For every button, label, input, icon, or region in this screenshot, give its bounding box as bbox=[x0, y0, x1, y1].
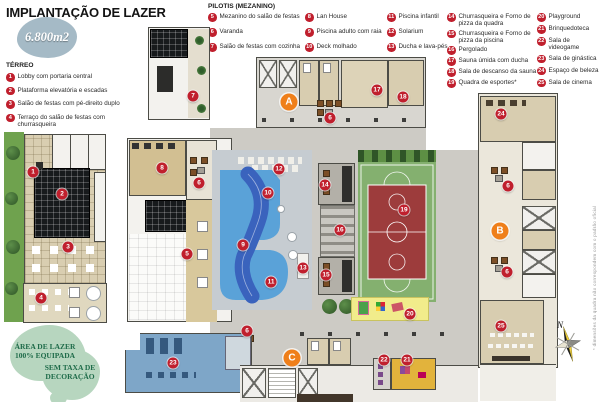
legend-number-badge: 5 bbox=[208, 13, 217, 22]
legend-number-badge: 22 bbox=[537, 37, 546, 46]
tower-badge-A: A bbox=[281, 94, 298, 111]
legend-pilotis-column-3: 11Piscina infantil12Solarium13Ducha e la… bbox=[387, 13, 449, 58]
plan-marker-7: 7 bbox=[188, 91, 199, 102]
legend-terreo: TÉRREO 1Lobby com portaria central2Plata… bbox=[6, 62, 140, 133]
plan-marker-2: 2 bbox=[57, 189, 68, 200]
plan-marker-10: 10 bbox=[263, 188, 274, 199]
area-badge-label: 6.800m2 bbox=[25, 30, 69, 45]
plan-marker-20: 20 bbox=[405, 309, 416, 320]
play-mat bbox=[358, 301, 369, 315]
cinema-seat-row bbox=[490, 333, 534, 337]
plan-marker-16: 16 bbox=[335, 225, 346, 236]
terrace-tables bbox=[29, 289, 69, 295]
promo-text-equipped: ÁREA DE LAZER 100% EQUIPADA bbox=[12, 343, 78, 360]
plan-marker-21: 21 bbox=[402, 355, 413, 366]
planter-row bbox=[300, 332, 450, 336]
chair bbox=[318, 110, 323, 115]
legend-item-1: 1Lobby com portaria central bbox=[6, 73, 140, 82]
plan-marker-14: 14 bbox=[320, 180, 331, 191]
legend-number-badge: 8 bbox=[305, 13, 314, 22]
court-disclaimer-note: * dimensões da quadra não correspondem c… bbox=[592, 140, 597, 350]
legend-item-label: Salão de festas com pé-direito duplo bbox=[18, 100, 120, 107]
bbq-table bbox=[324, 281, 329, 286]
legend-number-badge: 15 bbox=[447, 30, 456, 39]
tree bbox=[322, 299, 337, 314]
plan-marker-24: 24 bbox=[496, 109, 507, 120]
bbq-kiosk bbox=[70, 288, 79, 297]
legend-item-label: Espaço de beleza bbox=[549, 67, 599, 74]
plan-marker-8: 8 bbox=[157, 163, 168, 174]
legend-item-3: 3Salão de festas com pé-direito duplo bbox=[6, 100, 140, 109]
bathroom bbox=[329, 338, 351, 365]
toilet-fixture bbox=[324, 64, 330, 72]
compass-north-label: N bbox=[556, 320, 564, 330]
legend-number-badge: 13 bbox=[387, 43, 396, 52]
plan-marker-22: 22 bbox=[379, 355, 390, 366]
entrance-canopy bbox=[297, 394, 353, 402]
legend-number-badge: 17 bbox=[447, 57, 456, 66]
legend-terreo-header: TÉRREO bbox=[6, 62, 140, 69]
sofa bbox=[191, 170, 196, 175]
legend-item-15: 15Churrasqueira e Forno de pizza da pisc… bbox=[447, 30, 537, 44]
toys bbox=[400, 366, 410, 374]
chair bbox=[502, 258, 507, 263]
wall bbox=[70, 134, 71, 170]
legend-item-label: Salão de festas com cozinha bbox=[220, 43, 301, 50]
legend-item-2: 2Plataforma elevatória e escadas bbox=[6, 87, 140, 96]
tree bbox=[6, 146, 20, 160]
plant bbox=[197, 66, 206, 75]
cinema-seat-row bbox=[488, 344, 536, 348]
beauty-stations bbox=[486, 100, 526, 106]
legend-item-label: Sauna úmida com ducha bbox=[459, 57, 529, 64]
toys bbox=[418, 372, 426, 378]
legend-number-badge: 14 bbox=[447, 13, 456, 22]
wing-room bbox=[522, 230, 556, 250]
elevator-shaft bbox=[298, 368, 318, 396]
wall bbox=[88, 134, 89, 170]
plan-marker-6: 6 bbox=[242, 326, 253, 337]
sauna-room bbox=[341, 60, 388, 108]
plan-marker-19: 19 bbox=[399, 205, 410, 216]
legend-number-badge: 11 bbox=[387, 13, 396, 22]
legend-item-label: Pergolado bbox=[459, 46, 488, 53]
legend-number-badge: 2 bbox=[6, 87, 15, 96]
lobby-rooms bbox=[52, 134, 106, 170]
tree bbox=[5, 192, 18, 205]
legend-item-label: Churrasqueira e Forno de pizza da quadra bbox=[459, 13, 538, 27]
tower-badge-C: C bbox=[284, 350, 301, 367]
plan-marker-17: 17 bbox=[372, 85, 383, 96]
promo-blob bbox=[50, 391, 67, 402]
dining-table bbox=[157, 66, 173, 92]
deck-table bbox=[198, 250, 207, 259]
pergola-umbrella bbox=[86, 286, 101, 301]
wing-bottom-room bbox=[480, 364, 556, 401]
plan-marker-1: 1 bbox=[28, 167, 39, 178]
legend-item-label: Churrasqueira e Forno de pizza da piscin… bbox=[459, 30, 538, 44]
legend-item-19: 19Quadra de esportes* bbox=[447, 79, 537, 88]
elevator-shaft bbox=[279, 60, 297, 88]
elevator-shaft bbox=[522, 250, 556, 274]
plan-marker-13: 13 bbox=[298, 263, 309, 274]
tree bbox=[5, 282, 18, 295]
legend-item-label: Ducha e lava-pés bbox=[399, 43, 448, 50]
legend-item-label: Terraço do salão de festas com churrasqu… bbox=[18, 114, 141, 128]
plan-marker-4: 4 bbox=[36, 293, 47, 304]
plan-marker-6: 6 bbox=[502, 267, 513, 278]
area-badge: 6.800m2 bbox=[17, 17, 77, 58]
spa-circle bbox=[287, 232, 297, 242]
side-rooms bbox=[94, 172, 106, 242]
playroom bbox=[391, 358, 436, 390]
legend-pilotis-header: PILOTIS (MEZANINO) bbox=[208, 3, 600, 10]
gym-equipment-row bbox=[146, 372, 196, 378]
plant bbox=[197, 104, 206, 113]
stair-skylight bbox=[145, 200, 190, 232]
legend-item-label: Mezanino do salão de festas bbox=[220, 13, 300, 20]
chair bbox=[336, 101, 341, 106]
elevator-shaft bbox=[242, 368, 266, 398]
legend-number-badge: 3 bbox=[6, 100, 15, 109]
sofa bbox=[202, 158, 207, 163]
chair bbox=[318, 101, 323, 106]
legend-item-9: 9Piscina adulto com raia bbox=[305, 28, 387, 37]
legend-item-13: 13Ducha e lava-pés bbox=[387, 43, 449, 52]
legend-number-badge: 12 bbox=[387, 28, 396, 37]
legend-number-badge: 21 bbox=[537, 25, 546, 34]
legend-item-22: 22Sala de videogame bbox=[537, 37, 599, 51]
legend-item-6: 6Varanda bbox=[208, 28, 302, 37]
chair bbox=[492, 168, 497, 173]
bbq-kiosk bbox=[70, 308, 79, 317]
legend-item-label: Brinquedoteca bbox=[549, 25, 590, 32]
sports-court bbox=[358, 162, 436, 302]
legend-item-4: 4Terraço do salão de festas com churrasq… bbox=[6, 114, 140, 128]
bbq-table bbox=[324, 264, 329, 269]
deck-table bbox=[198, 222, 207, 231]
legend-pilotis-column-1: 5Mezanino do salão de festas6Varanda7Sal… bbox=[208, 13, 302, 58]
legend-item-16: 16Pergolado bbox=[447, 46, 537, 55]
legend-number-badge: 18 bbox=[447, 68, 456, 77]
plan-marker-12: 12 bbox=[274, 164, 285, 175]
legend-item-12: 12Solarium bbox=[387, 28, 449, 37]
bathroom bbox=[307, 338, 329, 365]
legend-number-badge: 1 bbox=[6, 73, 15, 82]
court-planter bbox=[358, 150, 436, 162]
legend-number-badge: 25 bbox=[537, 79, 546, 88]
elevator-shaft bbox=[522, 206, 556, 230]
legend-item-label: Sala de descanso da sauna bbox=[459, 68, 537, 75]
wing-room bbox=[522, 142, 556, 170]
legend-number-badge: 24 bbox=[537, 67, 546, 76]
glass-roof-ground bbox=[34, 168, 90, 238]
legend-item-23: 23Sala de ginástica bbox=[537, 55, 599, 64]
table bbox=[496, 176, 502, 181]
wing-room bbox=[522, 274, 556, 298]
promo-text-no-fee: SEM TAXA DE DECORAÇÃO bbox=[42, 364, 98, 381]
bbq-counter bbox=[342, 260, 352, 292]
gaming-chair bbox=[378, 372, 383, 377]
legend-pilotis-column-4: 14Churrasqueira e Forno de pizza da quad… bbox=[447, 13, 537, 90]
legend-item-21: 21Brinquedoteca bbox=[537, 25, 599, 34]
page-title: IMPLANTAÇÃO DE LAZER bbox=[6, 5, 166, 20]
toilet-fixture bbox=[304, 64, 310, 72]
legend-item-label: Deck molhado bbox=[317, 43, 357, 50]
legend-pilotis-column-5: 20Playground21Brinquedoteca22Sala de vid… bbox=[537, 13, 599, 91]
legend-pilotis-column-2: 8Lan House9Piscina adulto com raia10Deck… bbox=[305, 13, 387, 58]
terrace-tables bbox=[29, 305, 69, 311]
computer-desks bbox=[132, 143, 180, 149]
legend-item-label: Sala de cinema bbox=[549, 79, 592, 86]
column-row bbox=[262, 118, 422, 122]
sofa bbox=[191, 158, 196, 163]
legend-item-label: Piscina adulto com raia bbox=[317, 28, 382, 35]
legend-item-24: 24Espaço de beleza bbox=[537, 67, 599, 76]
legend-item-14: 14Churrasqueira e Forno de pizza da quad… bbox=[447, 13, 537, 27]
service-room bbox=[129, 200, 145, 232]
plan-marker-23: 23 bbox=[168, 358, 179, 369]
compass-rose: N bbox=[550, 318, 586, 364]
legend-item-11: 11Piscina infantil bbox=[387, 13, 449, 22]
legend-number-badge: 4 bbox=[6, 114, 15, 123]
plan-marker-25: 25 bbox=[496, 321, 507, 332]
legend-item-18: 18Sala de descanso da sauna bbox=[447, 68, 537, 77]
bbq-counter bbox=[342, 166, 352, 202]
legend-number-badge: 19 bbox=[447, 79, 456, 88]
leisure-implantation-plan: IMPLANTAÇÃO DE LAZER 6.800m2 TÉRREO 1Lob… bbox=[0, 0, 600, 402]
plan-marker-6: 6 bbox=[194, 178, 205, 189]
glass-roof bbox=[150, 29, 188, 58]
table bbox=[198, 168, 204, 173]
legend-item-label: Varanda bbox=[220, 28, 243, 35]
legend-number-badge: 20 bbox=[537, 13, 546, 22]
wing-room bbox=[522, 170, 556, 200]
stairs bbox=[268, 368, 296, 398]
toilet-fixture bbox=[334, 342, 340, 350]
legend-item-8: 8Lan House bbox=[305, 13, 387, 22]
bbq-table bbox=[324, 171, 329, 176]
cinema-room bbox=[480, 300, 544, 364]
plan-marker-5: 5 bbox=[182, 249, 193, 260]
treadmill bbox=[174, 338, 182, 354]
double-height-void bbox=[129, 234, 186, 320]
chair bbox=[327, 101, 332, 106]
elevator-shaft bbox=[259, 60, 277, 88]
legend-item-20: 20Playground bbox=[537, 13, 599, 22]
legend-item-label: Lobby com portaria central bbox=[18, 73, 93, 80]
legend-item-label: Quadra de esportes* bbox=[459, 79, 517, 86]
tree bbox=[6, 240, 20, 254]
play-blocks bbox=[376, 302, 385, 311]
plant bbox=[195, 36, 204, 45]
legend-item-label: Solarium bbox=[399, 28, 424, 35]
legend-item-25: 25Sala de cinema bbox=[537, 79, 599, 88]
pergola-umbrella bbox=[86, 306, 101, 321]
legend-item-10: 10Deck molhado bbox=[305, 43, 387, 52]
legend-item-label: Lan House bbox=[317, 13, 347, 20]
plan-marker-11: 11 bbox=[266, 277, 277, 288]
legend-item-label: Sala de ginástica bbox=[549, 55, 597, 62]
plan-marker-18: 18 bbox=[398, 92, 409, 103]
toilet-fixture bbox=[312, 342, 318, 350]
plan-marker-6: 6 bbox=[503, 181, 514, 192]
legend-number-badge: 23 bbox=[537, 55, 546, 64]
terrace-tables bbox=[32, 264, 96, 272]
plan-marker-15: 15 bbox=[321, 270, 332, 281]
legend-terreo-items: 1Lobby com portaria central2Plataforma e… bbox=[6, 73, 140, 128]
plan-marker-9: 9 bbox=[238, 240, 249, 251]
legend-item-label: Piscina infantil bbox=[399, 13, 439, 20]
legend-item-label: Playground bbox=[549, 13, 581, 20]
legend-item-5: 5Mezanino do salão de festas bbox=[208, 13, 302, 22]
plan-marker-6: 6 bbox=[325, 113, 336, 124]
plan-marker-3: 3 bbox=[63, 242, 74, 253]
tower-badge-B: B bbox=[492, 223, 509, 240]
legend-item-17: 17Sauna úmida com ducha bbox=[447, 57, 537, 66]
treadmill bbox=[146, 338, 154, 354]
legend-number-badge: 9 bbox=[305, 28, 314, 37]
treadmill bbox=[160, 338, 168, 354]
spa-circle bbox=[288, 250, 298, 260]
chair bbox=[502, 168, 507, 173]
legend-item-label: Plataforma elevatória e escadas bbox=[18, 87, 108, 94]
legend-item-label: Sala de videogame bbox=[549, 37, 600, 51]
gym-notch bbox=[125, 333, 140, 350]
deck-table bbox=[198, 278, 207, 287]
chair bbox=[492, 258, 497, 263]
legend-item-7: 7Salão de festas com cozinha bbox=[208, 43, 302, 52]
legend-number-badge: 10 bbox=[305, 43, 314, 52]
legend-number-badge: 16 bbox=[447, 46, 456, 55]
cinema-screen bbox=[492, 356, 530, 361]
gaming-chair bbox=[378, 380, 383, 385]
spa-circle bbox=[277, 205, 285, 213]
